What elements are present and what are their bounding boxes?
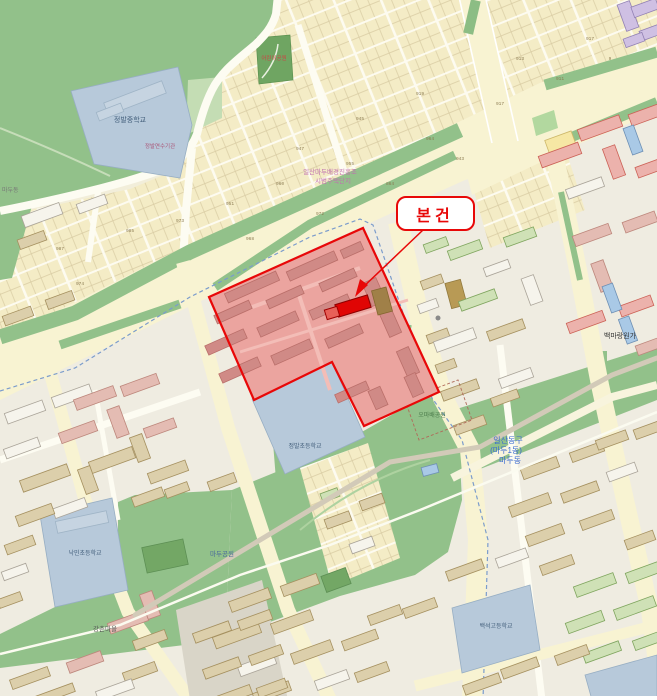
svg-text:864: 864 bbox=[386, 181, 394, 187]
svg-text:마두동: 마두동 bbox=[499, 456, 521, 465]
svg-text:시범주택단지: 시범주택단지 bbox=[315, 176, 351, 185]
svg-text:오마배공원: 오마배공원 bbox=[418, 411, 446, 419]
svg-text:964: 964 bbox=[426, 136, 434, 142]
svg-text:백마랑원가: 백마랑원가 bbox=[604, 331, 637, 340]
svg-text:913: 913 bbox=[516, 56, 524, 62]
svg-text:974: 974 bbox=[76, 281, 84, 287]
svg-text:백석고등학교: 백석고등학교 bbox=[479, 622, 513, 630]
svg-text:(마두1동): (마두1동) bbox=[490, 446, 522, 455]
svg-text:972: 972 bbox=[316, 211, 324, 217]
svg-text:정발연수기관: 정발연수기관 bbox=[145, 142, 175, 150]
svg-text:947: 947 bbox=[296, 146, 304, 152]
svg-text:일산마두배경진흥조: 일산마두배경진흥조 bbox=[303, 167, 357, 176]
svg-text:945: 945 bbox=[356, 116, 364, 122]
svg-text:917: 917 bbox=[496, 101, 504, 107]
svg-text:917: 917 bbox=[586, 36, 594, 42]
svg-text:본건: 본건 bbox=[416, 207, 453, 225]
svg-text:마두공원: 마두공원 bbox=[210, 549, 234, 558]
svg-text:973: 973 bbox=[176, 218, 184, 224]
svg-text:919: 919 bbox=[416, 91, 424, 97]
svg-text:960: 960 bbox=[276, 181, 284, 187]
svg-text:968: 968 bbox=[246, 236, 254, 242]
svg-text:955: 955 bbox=[346, 161, 354, 167]
svg-text:정발중학교: 정발중학교 bbox=[114, 115, 147, 124]
svg-text:정발초등학교: 정발초등학교 bbox=[288, 442, 322, 450]
svg-text:9: 9 bbox=[609, 56, 612, 62]
svg-text:일산동구: 일산동구 bbox=[493, 435, 522, 445]
svg-text:943: 943 bbox=[456, 156, 464, 162]
svg-text:낙민초등학교: 낙민초등학교 bbox=[68, 549, 102, 557]
svg-text:마두동: 마두동 bbox=[2, 186, 19, 194]
svg-text:강촌마을: 강촌마을 bbox=[93, 624, 117, 633]
svg-text:951: 951 bbox=[226, 201, 234, 207]
svg-text:어린이공원: 어린이공원 bbox=[261, 54, 286, 62]
svg-text:985: 985 bbox=[126, 228, 134, 234]
svg-text:911: 911 bbox=[556, 76, 564, 82]
svg-text:987: 987 bbox=[56, 246, 64, 252]
